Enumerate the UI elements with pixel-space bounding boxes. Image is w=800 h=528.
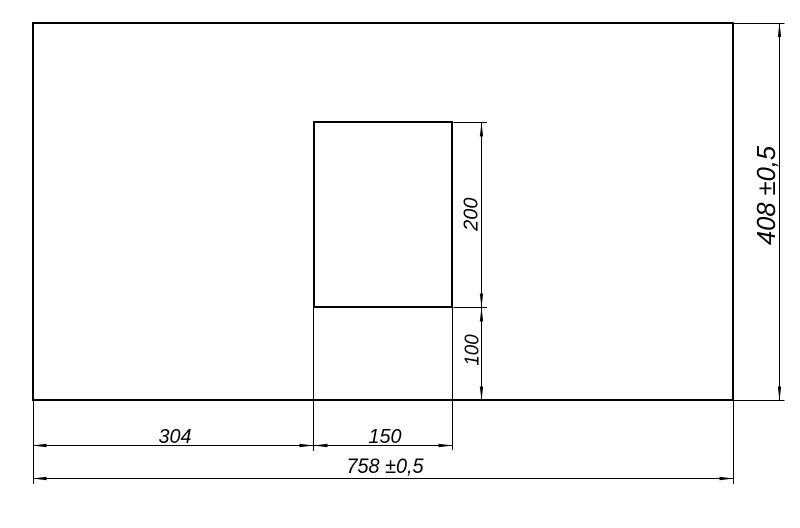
svg-text:100: 100 <box>462 334 484 365</box>
svg-text:758 ±0,5: 758 ±0,5 <box>347 454 425 478</box>
svg-text:200: 200 <box>461 198 483 232</box>
svg-text:408 ±0,5: 408 ±0,5 <box>751 145 781 245</box>
svg-text:150: 150 <box>369 426 402 448</box>
svg-text:304: 304 <box>159 426 192 448</box>
